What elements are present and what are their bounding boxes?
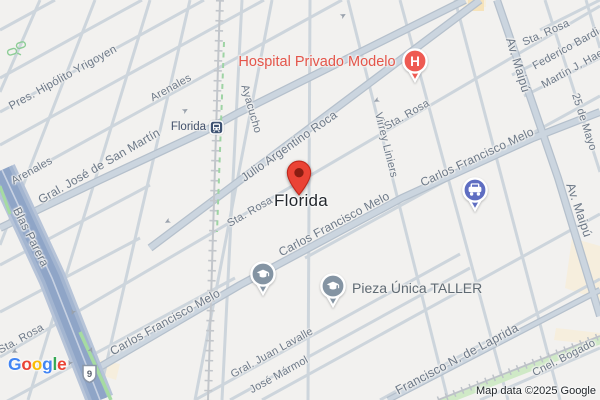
train-station-icon[interactable]	[209, 120, 224, 135]
place-pin[interactable]	[286, 160, 312, 196]
railway	[208, 0, 224, 400]
education-pin[interactable]	[318, 272, 348, 315]
svg-text:H: H	[410, 54, 420, 69]
google-logo-letter: o	[32, 354, 42, 374]
map-canvas[interactable]: Pres. Hipólito YrigoyenArenalesArenalesG…	[0, 0, 600, 400]
education-pin[interactable]	[248, 260, 278, 303]
education-label[interactable]: Pieza Única TALLER	[352, 280, 482, 296]
google-logo[interactable]: Google	[8, 354, 66, 375]
hospital-pin[interactable]: H	[400, 47, 430, 90]
route-9-shield: 9	[81, 364, 98, 384]
hospital-label[interactable]: Hospital Privado Modelo	[238, 54, 395, 70]
route-number: 9	[87, 369, 92, 380]
car-pin[interactable]	[460, 176, 490, 219]
station-label[interactable]: Florida	[171, 121, 206, 133]
google-logo-letter: g	[42, 354, 52, 374]
google-logo-letter: e	[57, 354, 66, 374]
map-attribution: Map data ©2025 Google	[476, 385, 596, 397]
google-logo-letter: o	[21, 354, 31, 374]
google-logo-letter: G	[8, 354, 21, 374]
